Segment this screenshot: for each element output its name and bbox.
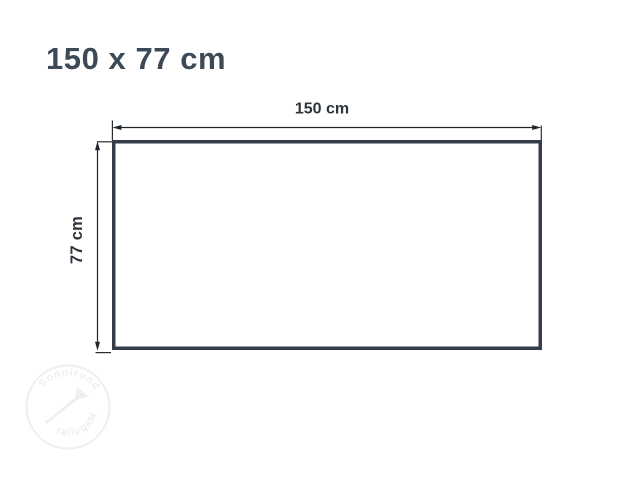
svg-text:77 cm: 77 cm: [68, 216, 86, 264]
svg-text:150 cm: 150 cm: [295, 101, 349, 118]
svg-text:150 x 77 cm: 150 x 77 cm: [46, 41, 226, 76]
